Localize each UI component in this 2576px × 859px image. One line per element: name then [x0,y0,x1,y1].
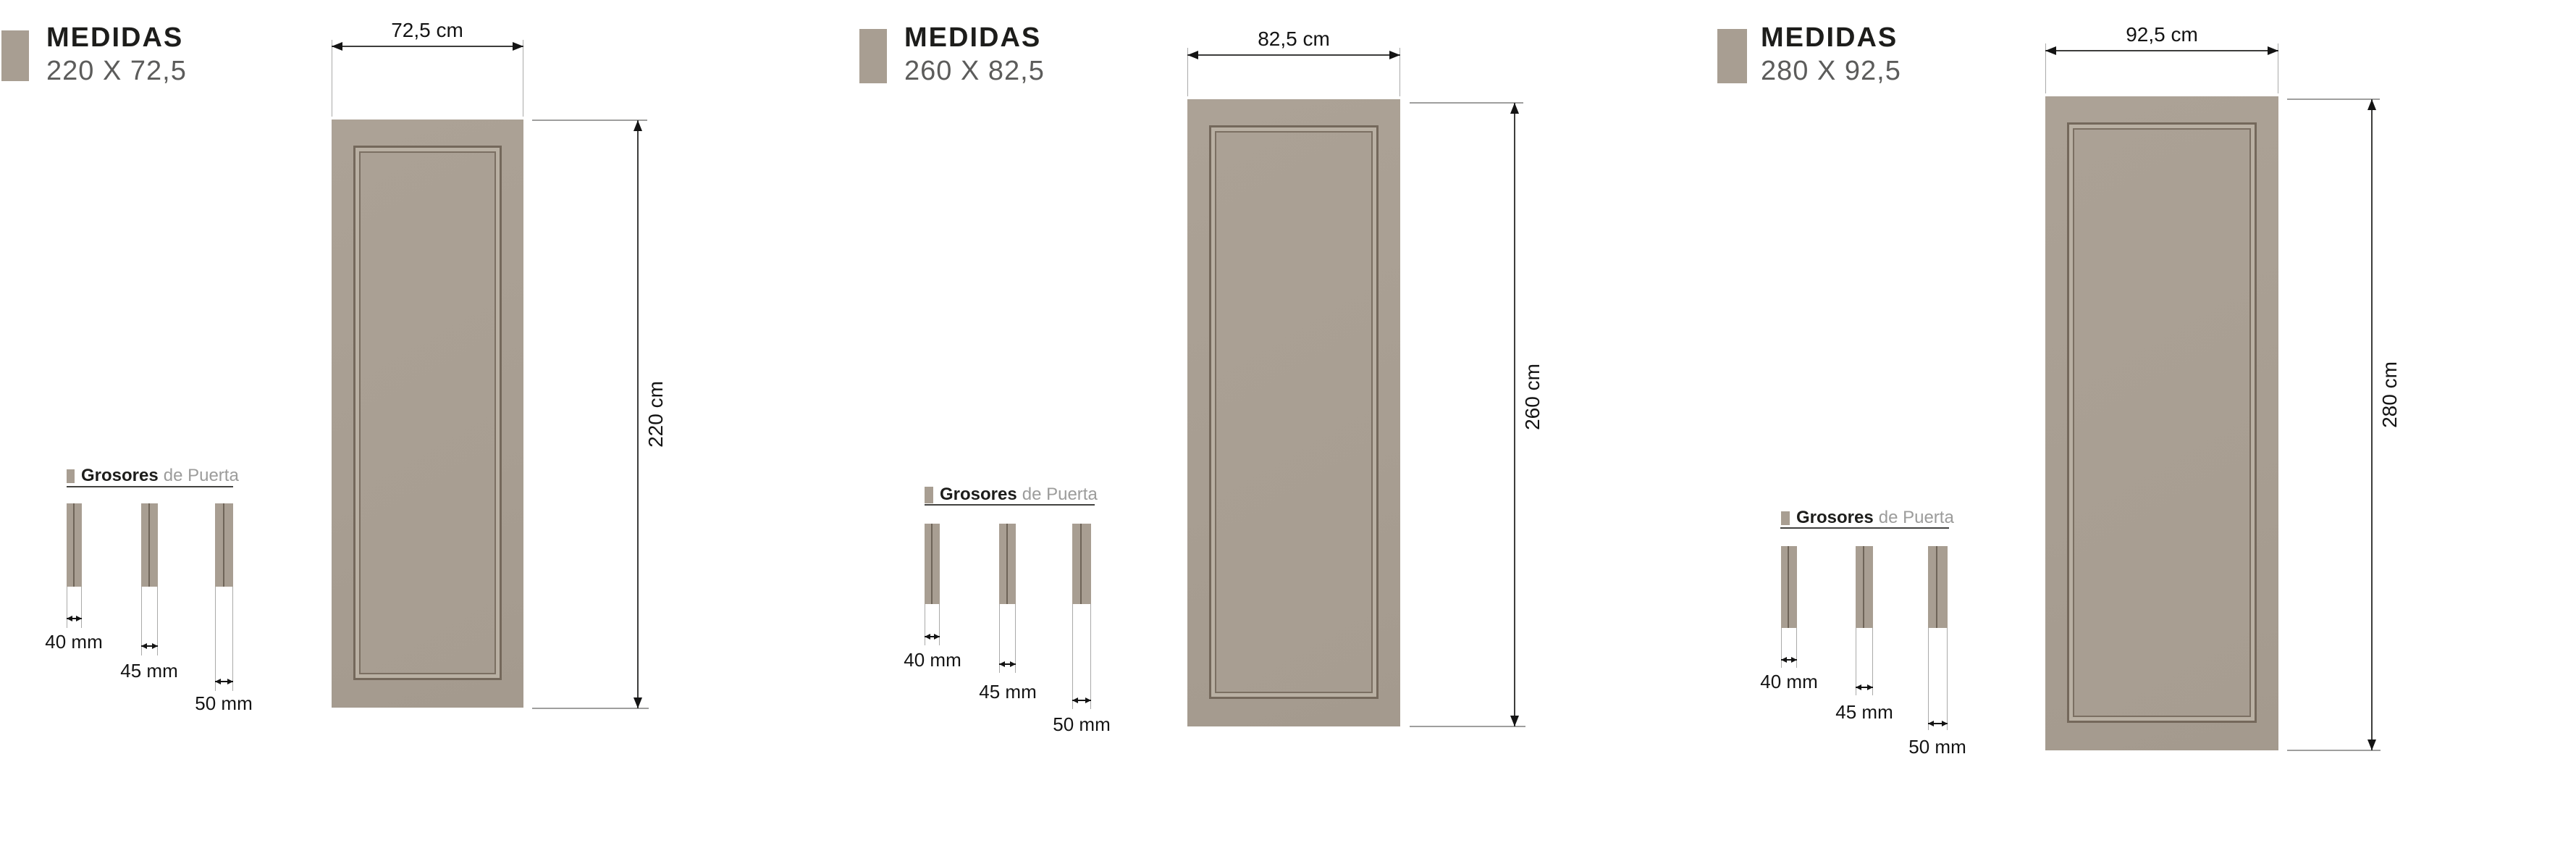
height-dimension-label: 260 cm [1521,364,1544,430]
panel-title: MEDIDAS [1761,22,1901,54]
panel-header: MEDIDAS 220 X 72,5 [46,22,187,87]
thickness-bar-45 [141,503,158,587]
panel-medidas-2: MEDIDAS 260 X 82,5 82,5 cm 260 cm Grosor… [858,0,1717,859]
height-dimension-arrow [637,120,639,708]
thickness-arrow [1781,659,1797,661]
connector-line [532,708,649,709]
thickness-label: 40 mm [45,631,102,653]
thickness-arrow [999,663,1016,665]
thickness-arrow [141,645,158,647]
grosores-title-light: de Puerta [1879,508,1954,527]
extension-line [67,587,67,628]
connector-line [532,120,647,121]
thickness-bar-50 [215,503,233,587]
thickness-arrow [67,618,82,619]
grosores-title: Grosoresde Puerta [1796,508,1954,527]
connector-line [2287,99,2380,100]
width-dimension-label: 72,5 cm [391,19,463,42]
grosores-swatch [1781,511,1790,525]
panel-size: 220 X 72,5 [46,55,187,87]
height-dimension-label: 220 cm [644,381,668,448]
door-illustration [1187,99,1400,726]
panel-medidas-1: MEDIDAS 220 X 72,5 72,5 cm 220 cm Grosor… [0,0,859,859]
extension-line [1928,628,1929,730]
extension-line [523,40,523,117]
thickness-bar-40 [67,503,82,587]
extension-line [232,587,233,691]
height-dimension-label: 280 cm [2378,361,2402,428]
color-swatch [859,29,887,83]
grosores-title-bold: Grosores [940,485,1017,504]
thickness-arrow [1928,723,1948,724]
thickness-bar-45 [1856,546,1873,628]
thickness-bar-40 [1781,546,1797,628]
extension-line [215,587,216,691]
thickness-label: 40 mm [1760,671,1817,693]
grosores-swatch [925,487,933,503]
panel-title: MEDIDAS [46,22,187,54]
panel-size: 280 X 92,5 [1761,55,1901,87]
thickness-bar-50 [1072,524,1091,604]
color-swatch [1,30,29,81]
connector-line [1410,726,1525,727]
thickness-label: 40 mm [904,649,961,671]
panel-header: MEDIDAS 260 X 82,5 [904,22,1045,87]
height-dimension-arrow [1514,103,1515,726]
panel-header: MEDIDAS 280 X 92,5 [1761,22,1901,87]
width-dimension-label: 92,5 cm [2126,23,2198,46]
grosores-title-bold: Grosores [81,466,159,485]
grosores-swatch [67,469,75,483]
grosores-title-light: de Puerta [164,466,239,485]
grosores-underline [1780,527,1949,529]
grosores-underline [67,486,233,487]
connector-line [1410,102,1523,104]
thickness-label: 50 mm [1053,713,1110,736]
thickness-label: 45 mm [979,681,1036,703]
thickness-label: 50 mm [195,692,252,715]
width-dimension-arrow [332,46,523,47]
grosores-underline [925,504,1095,506]
grosores-title: Grosoresde Puerta [81,466,239,485]
extension-line [1090,604,1091,709]
extension-line [1072,604,1073,709]
extension-line [332,40,332,117]
extension-line [81,587,82,628]
width-dimension-arrow [1187,54,1400,56]
grosores-title-bold: Grosores [1796,508,1874,527]
panel-title: MEDIDAS [904,22,1045,54]
door-illustration [2045,96,2278,750]
connector-line [2287,750,2381,751]
width-dimension-label: 82,5 cm [1258,28,1330,51]
door-illustration [332,120,523,708]
thickness-bar-40 [925,524,940,604]
height-dimension-arrow [2371,99,2373,750]
door-moulding [1209,125,1379,699]
thickness-arrow [925,636,940,637]
thickness-arrow [1856,687,1873,688]
thickness-arrow [1072,700,1091,701]
extension-line [1947,628,1948,730]
thickness-label: 45 mm [120,660,177,682]
door-moulding [2067,122,2257,723]
thickness-bar-50 [1928,546,1948,628]
color-swatch [1717,29,1747,83]
door-moulding [353,146,502,680]
thickness-label: 45 mm [1835,701,1893,724]
panel-size: 260 X 82,5 [904,55,1045,87]
spec-sheet: MEDIDAS 220 X 72,5 72,5 cm 220 cm Grosor… [0,0,2576,859]
grosores-title-light: de Puerta [1022,485,1098,504]
thickness-label: 50 mm [1908,736,1966,758]
panel-medidas-3: MEDIDAS 280 X 92,5 92,5 cm 280 cm Grosor… [1716,0,2575,859]
grosores-title: Grosoresde Puerta [940,485,1098,504]
thickness-bar-45 [999,524,1016,604]
width-dimension-arrow [2045,50,2278,51]
thickness-arrow [215,681,233,682]
